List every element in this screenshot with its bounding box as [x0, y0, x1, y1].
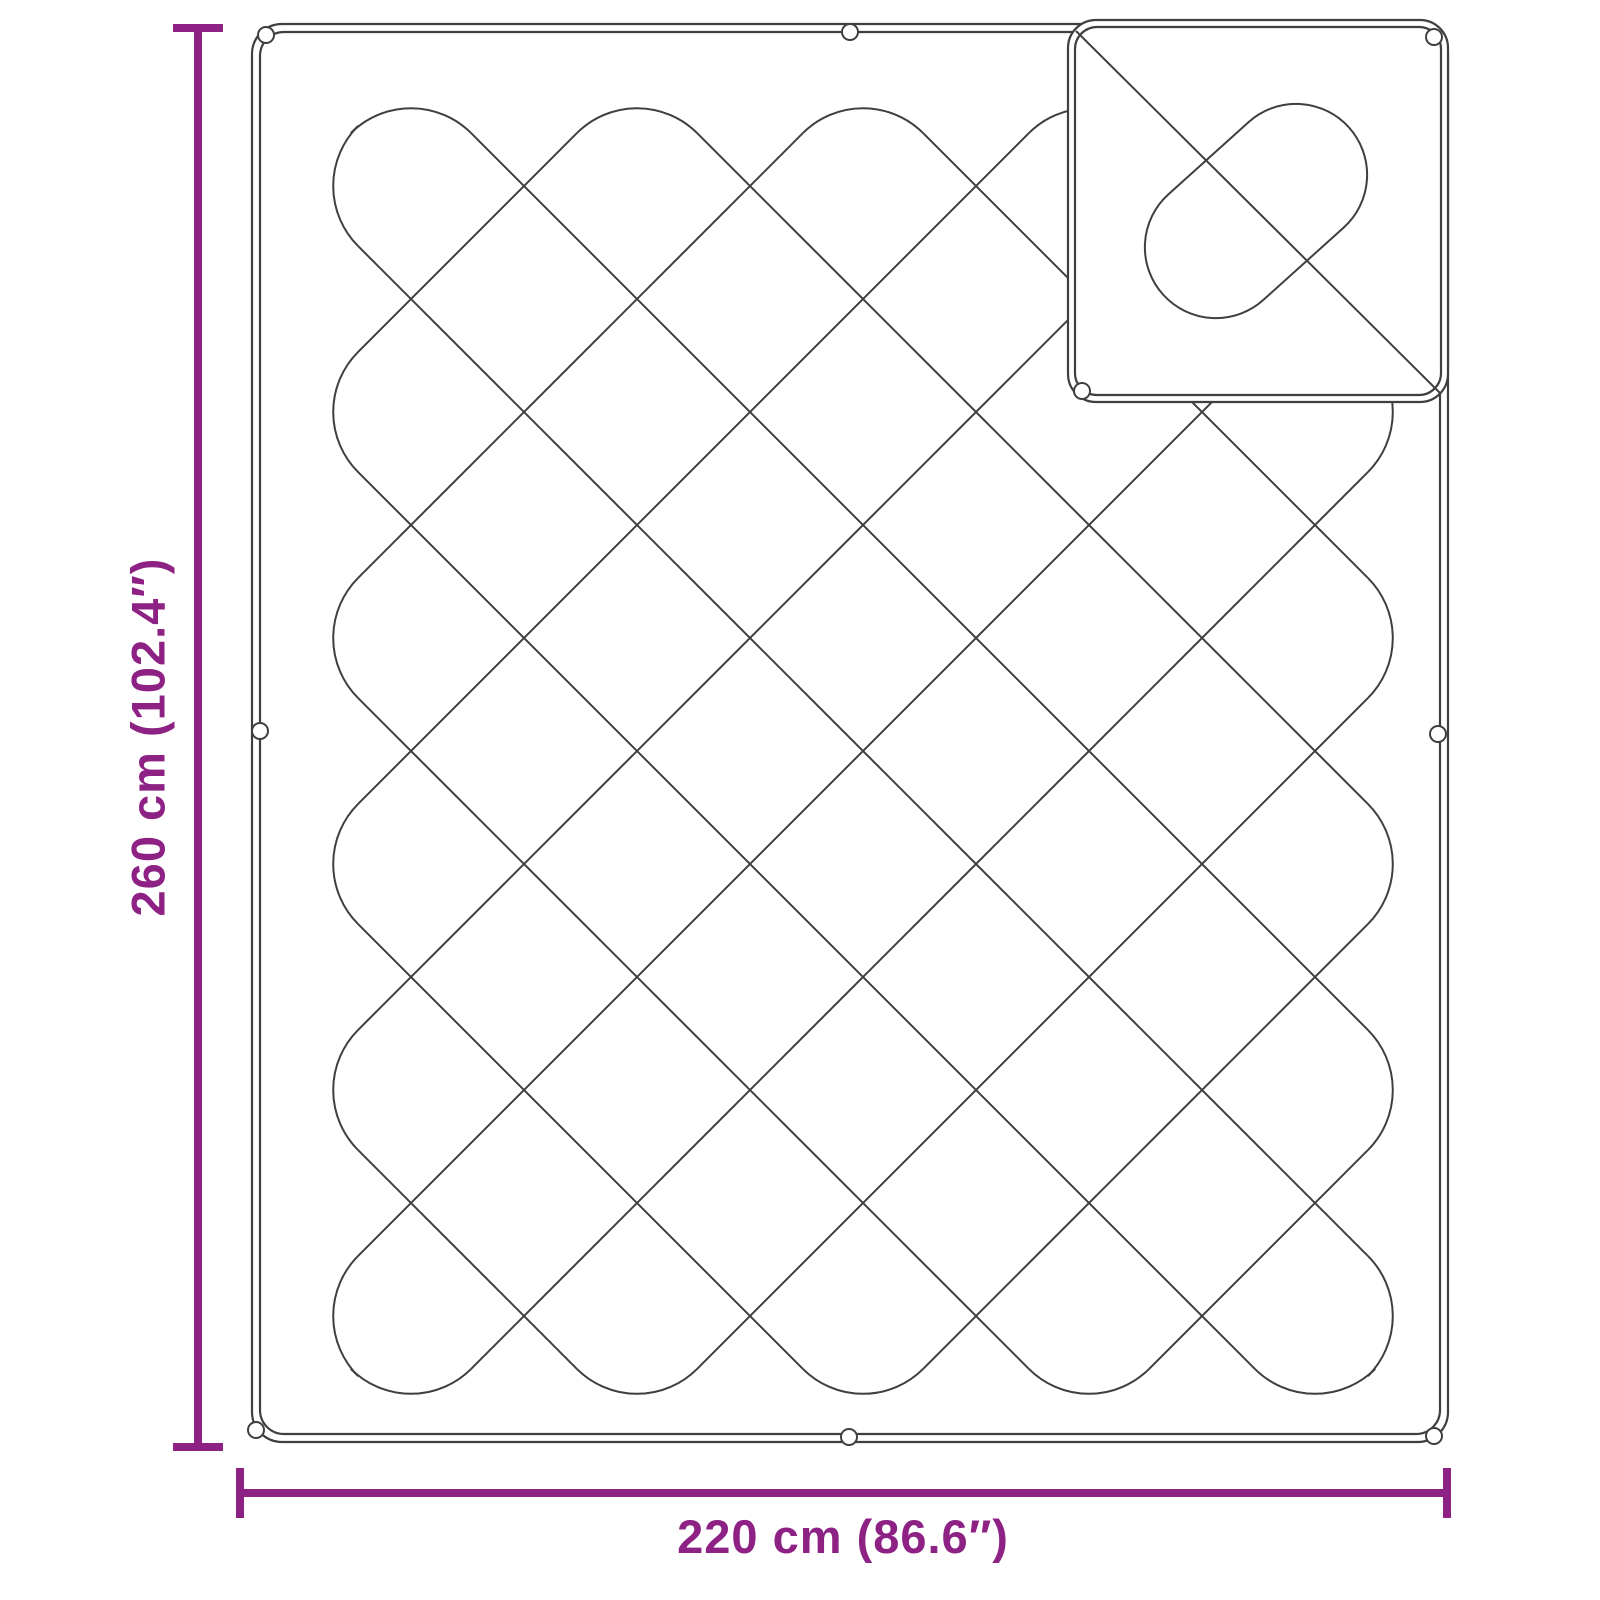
quilt-stitch-turn — [333, 1030, 358, 1150]
folded-corner-flap — [1068, 20, 1448, 402]
quilt-stitch-turn — [803, 1369, 923, 1394]
height-dimension: 260 cm (102.4″) — [122, 24, 224, 1451]
width-dimension: 220 cm (86.6″) — [236, 1468, 1451, 1563]
quilt-stitch-turn — [577, 1369, 697, 1394]
quilt-stitch-line — [358, 133, 577, 352]
attachment-loop-icon — [842, 24, 858, 40]
quilt-stitch-line — [1149, 1150, 1368, 1369]
quilt-stitch-turn — [333, 352, 358, 472]
width-dimension-left-cap — [236, 1468, 244, 1518]
quilt-stitch-turn — [333, 126, 358, 246]
quilt-stitch-turn — [333, 804, 358, 924]
quilt-stitch-turn — [1368, 1030, 1393, 1150]
quilt-stitch-line — [697, 698, 1368, 1369]
quilt-stitch-line — [358, 1150, 577, 1369]
attachment-loop-icon — [1426, 1428, 1442, 1444]
quilt-stitch-turn — [803, 108, 923, 133]
quilt-stitch-turn — [1255, 1369, 1375, 1394]
product-dimension-page: { "figure": { "type": "product-dimension… — [0, 0, 1600, 1600]
height-dimension-top-cap — [173, 24, 223, 32]
attachment-loop-icon — [1074, 383, 1090, 399]
quilt-stitch-turn — [333, 578, 358, 698]
attachment-loop-icon — [252, 723, 268, 739]
attachment-loop-icon — [841, 1429, 857, 1445]
quilt-stitch-turn — [351, 1369, 471, 1394]
width-dimension-label: 220 cm (86.6″) — [677, 1510, 1009, 1563]
quilt-stitch-turn — [1368, 578, 1393, 698]
attachment-loop-icon — [1426, 29, 1442, 45]
height-dimension-label: 260 cm (102.4″) — [122, 558, 175, 917]
quilt-stitch-turn — [351, 108, 471, 133]
quilt-stitch-line — [471, 472, 1368, 1369]
attachment-loop-icon — [1430, 726, 1446, 742]
quilt-stitch-line — [358, 133, 1029, 804]
quilt-stitch-line — [358, 133, 803, 578]
quilt-stitch-turn — [333, 1256, 358, 1376]
height-dimension-bottom-cap — [173, 1443, 223, 1451]
attachment-loop-icon — [258, 27, 274, 43]
quilt-stitch-line — [358, 698, 1029, 1369]
attachment-loop-icon — [248, 1422, 264, 1438]
product-dimension-diagram: 260 cm (102.4″) 220 cm (86.6″) — [0, 0, 1600, 1600]
quilt-stitch-turn — [1029, 1369, 1149, 1394]
width-dimension-right-cap — [1443, 1468, 1451, 1518]
quilt-stitch-turn — [1368, 804, 1393, 924]
quilt-stitch-turn — [1368, 1256, 1393, 1376]
quilt-stitch-line — [358, 472, 1255, 1369]
quilt-stitch-line — [923, 924, 1368, 1369]
quilt-stitch-line — [358, 924, 803, 1369]
quilt-stitch-turn — [577, 108, 697, 133]
